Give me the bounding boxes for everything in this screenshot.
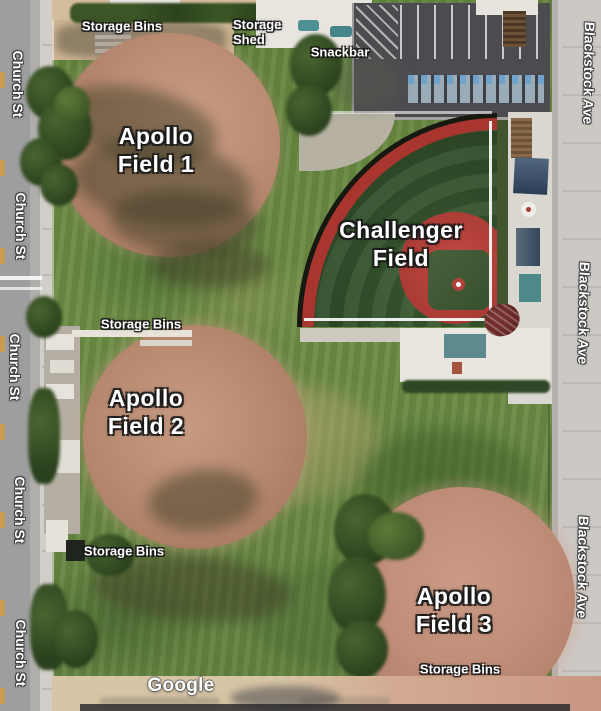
tree <box>40 164 78 206</box>
tree <box>28 388 60 484</box>
label-storage-bins-mid: Storage Bins <box>101 317 181 332</box>
foul-line-right <box>489 121 492 327</box>
crosswalk-line <box>0 276 42 280</box>
label-line: Storage <box>233 17 281 32</box>
storage-trailer <box>46 520 68 552</box>
field-label-apollo-2: Apollo Field 2 <box>108 384 184 440</box>
label-snackbar: Snackbar <box>311 45 370 60</box>
street-label-blackstock-ave: Blackstock Ave <box>574 515 592 619</box>
round-picnic-table-center <box>526 207 531 212</box>
label-line: Field 1 <box>118 150 194 178</box>
clubhouse-panel <box>444 334 486 358</box>
label-line: Field 3 <box>416 610 492 638</box>
label-line: Field 2 <box>108 412 184 440</box>
label-storage-shed: Storage Shed <box>233 17 281 47</box>
tree <box>286 84 332 136</box>
label-storage-bins-top: Storage Bins <box>82 19 162 34</box>
woodpile <box>503 11 526 47</box>
field-label-challenger: Challenger Field <box>339 216 463 272</box>
crosswalk-line <box>0 287 42 290</box>
storage-fence-bar <box>140 340 192 346</box>
street-label-church-st: Church St <box>10 51 26 118</box>
label-line: Shed <box>233 32 281 47</box>
picnic-table <box>330 26 352 37</box>
bleacher <box>511 118 532 158</box>
label-line: Apollo <box>108 384 184 412</box>
google-watermark[interactable]: Google <box>147 675 214 697</box>
label-line: Apollo <box>416 582 492 610</box>
road-center-dashes <box>0 0 5 711</box>
dugout-canopy <box>513 157 549 195</box>
tree <box>368 512 424 560</box>
street-label-church-st: Church St <box>13 620 29 687</box>
street-label-church-st: Church St <box>12 477 28 544</box>
clubhouse-crate <box>452 362 462 374</box>
tree <box>336 620 388 678</box>
challenger-pitcher-dot <box>456 282 461 287</box>
street-label-church-st: Church St <box>13 193 29 260</box>
hedge-row <box>402 380 550 393</box>
tree-shadow <box>150 242 270 288</box>
bleacher <box>50 360 74 373</box>
street-label-blackstock-ave: Blackstock Ave <box>580 21 598 125</box>
tree <box>54 86 90 124</box>
storage-bin-dark <box>66 540 85 561</box>
field-label-apollo-3: Apollo Field 3 <box>416 582 492 638</box>
parking-blue-markers <box>408 75 544 84</box>
street-label-church-st: Church St <box>7 334 23 401</box>
dugout-canopy <box>519 274 541 302</box>
bottom-dark-band <box>80 704 570 711</box>
field-label-apollo-1: Apollo Field 1 <box>118 122 194 178</box>
label-storage-bins-lower: Storage Bins <box>84 544 164 559</box>
foul-line-bottom <box>304 318 492 321</box>
label-line: Apollo <box>118 122 194 150</box>
label-storage-bins-bottom: Storage Bins <box>420 662 500 677</box>
tree <box>26 296 62 338</box>
label-line: Challenger <box>339 216 463 244</box>
dugout-canopy <box>516 228 540 266</box>
tree <box>54 610 98 668</box>
label-line: Field <box>339 244 463 272</box>
satellite-map[interactable]: Storage Bins Storage Shed Snackbar Apoll… <box>0 0 601 711</box>
street-label-blackstock-ave: Blackstock Ave <box>575 261 593 365</box>
picnic-table <box>298 20 319 31</box>
